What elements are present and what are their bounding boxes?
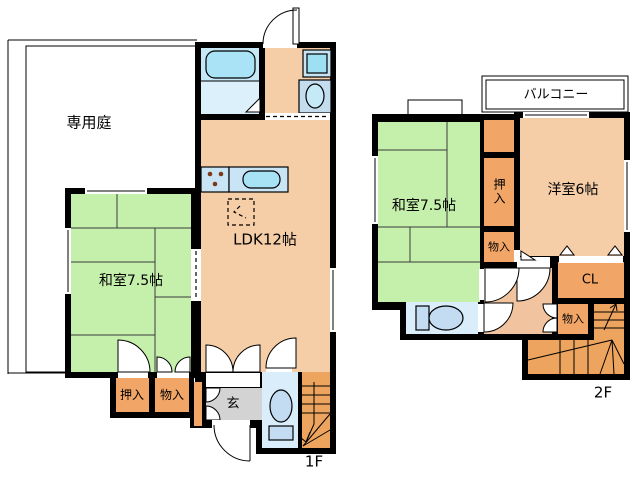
label-garden: 専用庭 bbox=[66, 116, 111, 131]
kitchen-counter bbox=[201, 167, 288, 192]
washing-machine-icon bbox=[303, 50, 331, 77]
label-youshitsu: 洋室6帖 bbox=[548, 183, 599, 197]
label-monoire-lower-2f: 物入 bbox=[562, 314, 584, 325]
floor-2f bbox=[372, 76, 630, 380]
toilet-icon-2f bbox=[416, 306, 463, 330]
closet-top-2f bbox=[484, 120, 514, 152]
stairs-1f-floor bbox=[302, 372, 330, 448]
floorplan-canvas bbox=[0, 0, 638, 480]
toilet-icon-1f bbox=[269, 390, 293, 440]
label-oshiire-2f: 押入 bbox=[493, 178, 505, 206]
label-ldk: LDK12帖 bbox=[233, 233, 297, 248]
washbasin-icon bbox=[299, 80, 331, 113]
label-washitsu-1f: 和室7.5帖 bbox=[99, 274, 163, 288]
stove-burner-icon bbox=[201, 167, 229, 192]
label-monoire-upper-2f: 物入 bbox=[488, 242, 510, 253]
label-cl: CL bbox=[582, 274, 598, 287]
label-monoire-1f: 物入 bbox=[160, 389, 184, 401]
label-oshiire-1f: 押入 bbox=[120, 389, 144, 401]
bathtub-icon bbox=[206, 51, 255, 78]
label-floor-1f: 1F bbox=[305, 455, 323, 470]
label-balcony: バルコニー bbox=[524, 89, 589, 102]
label-genkan: 玄 bbox=[226, 398, 239, 411]
floorplan: 専用庭 LDK12帖 和室7.5帖 押入 物入 玄 1F バルコニー 和室7.5… bbox=[0, 0, 638, 480]
shoe-cabinet bbox=[194, 382, 202, 426]
label-washitsu-2f: 和室7.5帖 bbox=[392, 199, 456, 213]
label-floor-2f: 2F bbox=[594, 386, 612, 401]
